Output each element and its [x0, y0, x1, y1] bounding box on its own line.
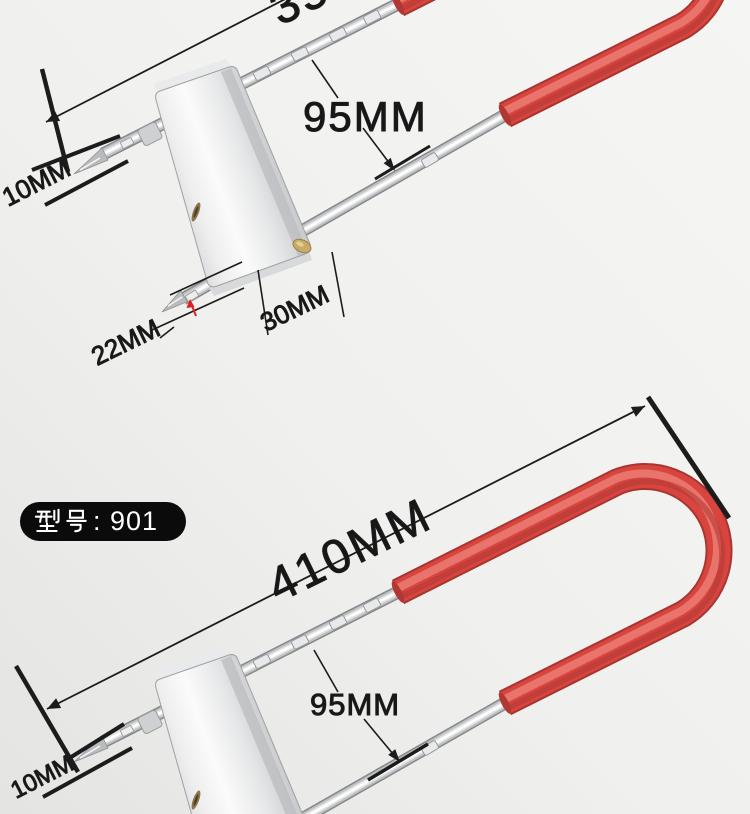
dim-95mm-label: 95MM	[310, 687, 400, 722]
annotated-product-image: 350MM 10MM 95MM 30MM 22MM 410MM 95MM	[0, 0, 750, 814]
model-badge: : 901	[20, 502, 186, 541]
model-badge-value: : 901	[93, 506, 158, 536]
dim-95mm-label: 95MM	[303, 93, 428, 140]
